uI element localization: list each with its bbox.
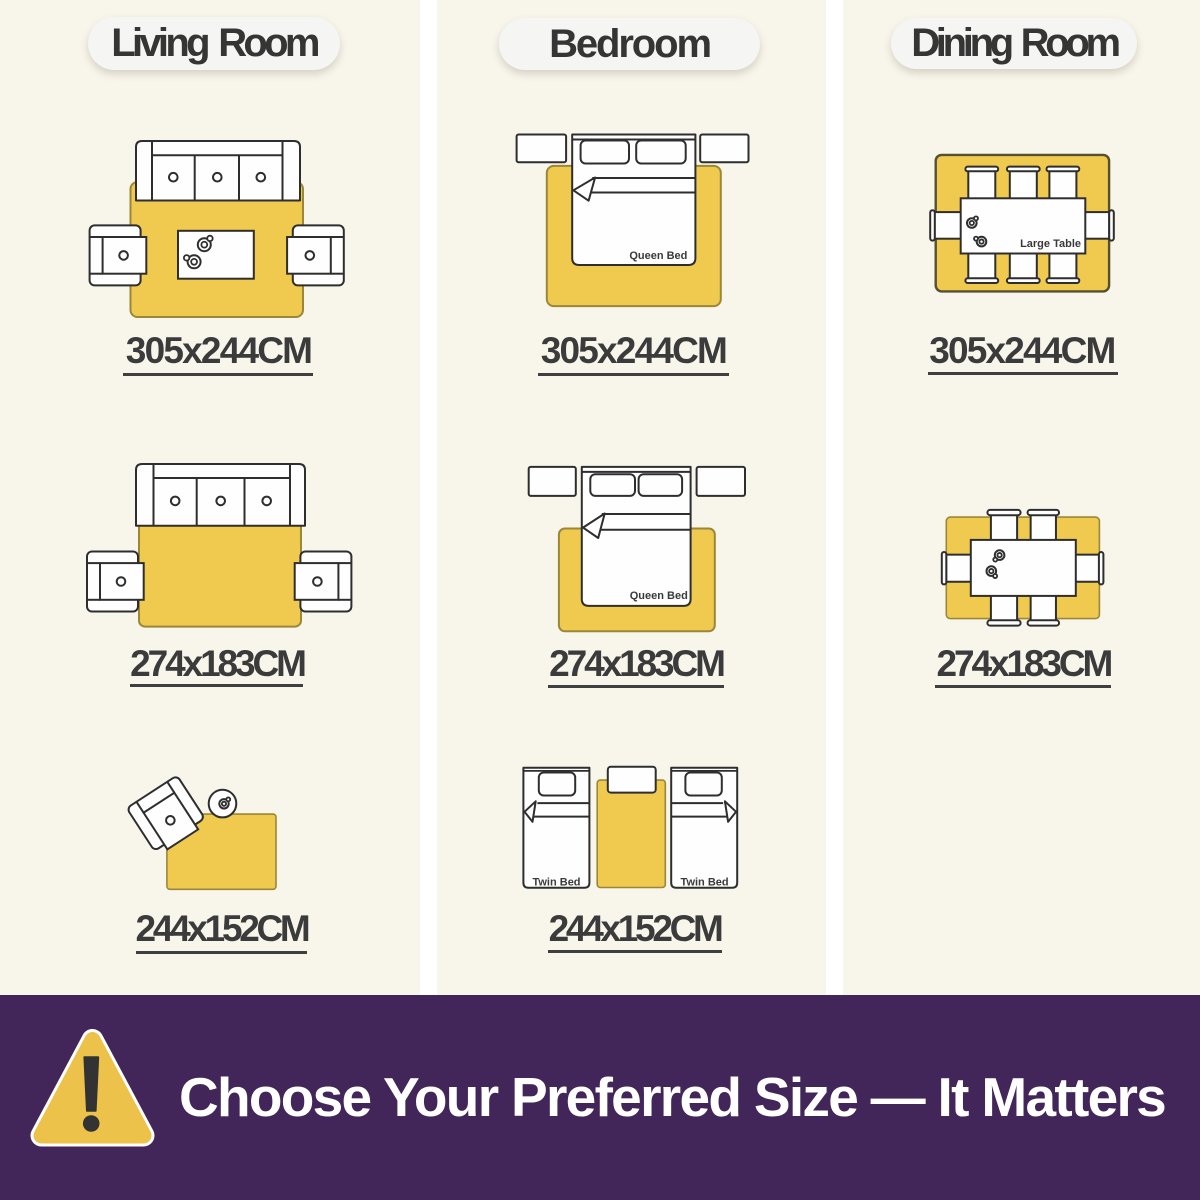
svg-text:Large Table: Large Table	[1020, 238, 1081, 250]
svg-text:Queen Bed: Queen Bed	[629, 250, 687, 262]
svg-text:Queen Bed: Queen Bed	[630, 590, 688, 602]
svg-text:Twin Bed: Twin Bed	[681, 877, 729, 889]
svg-text:Twin Bed: Twin Bed	[532, 877, 580, 889]
